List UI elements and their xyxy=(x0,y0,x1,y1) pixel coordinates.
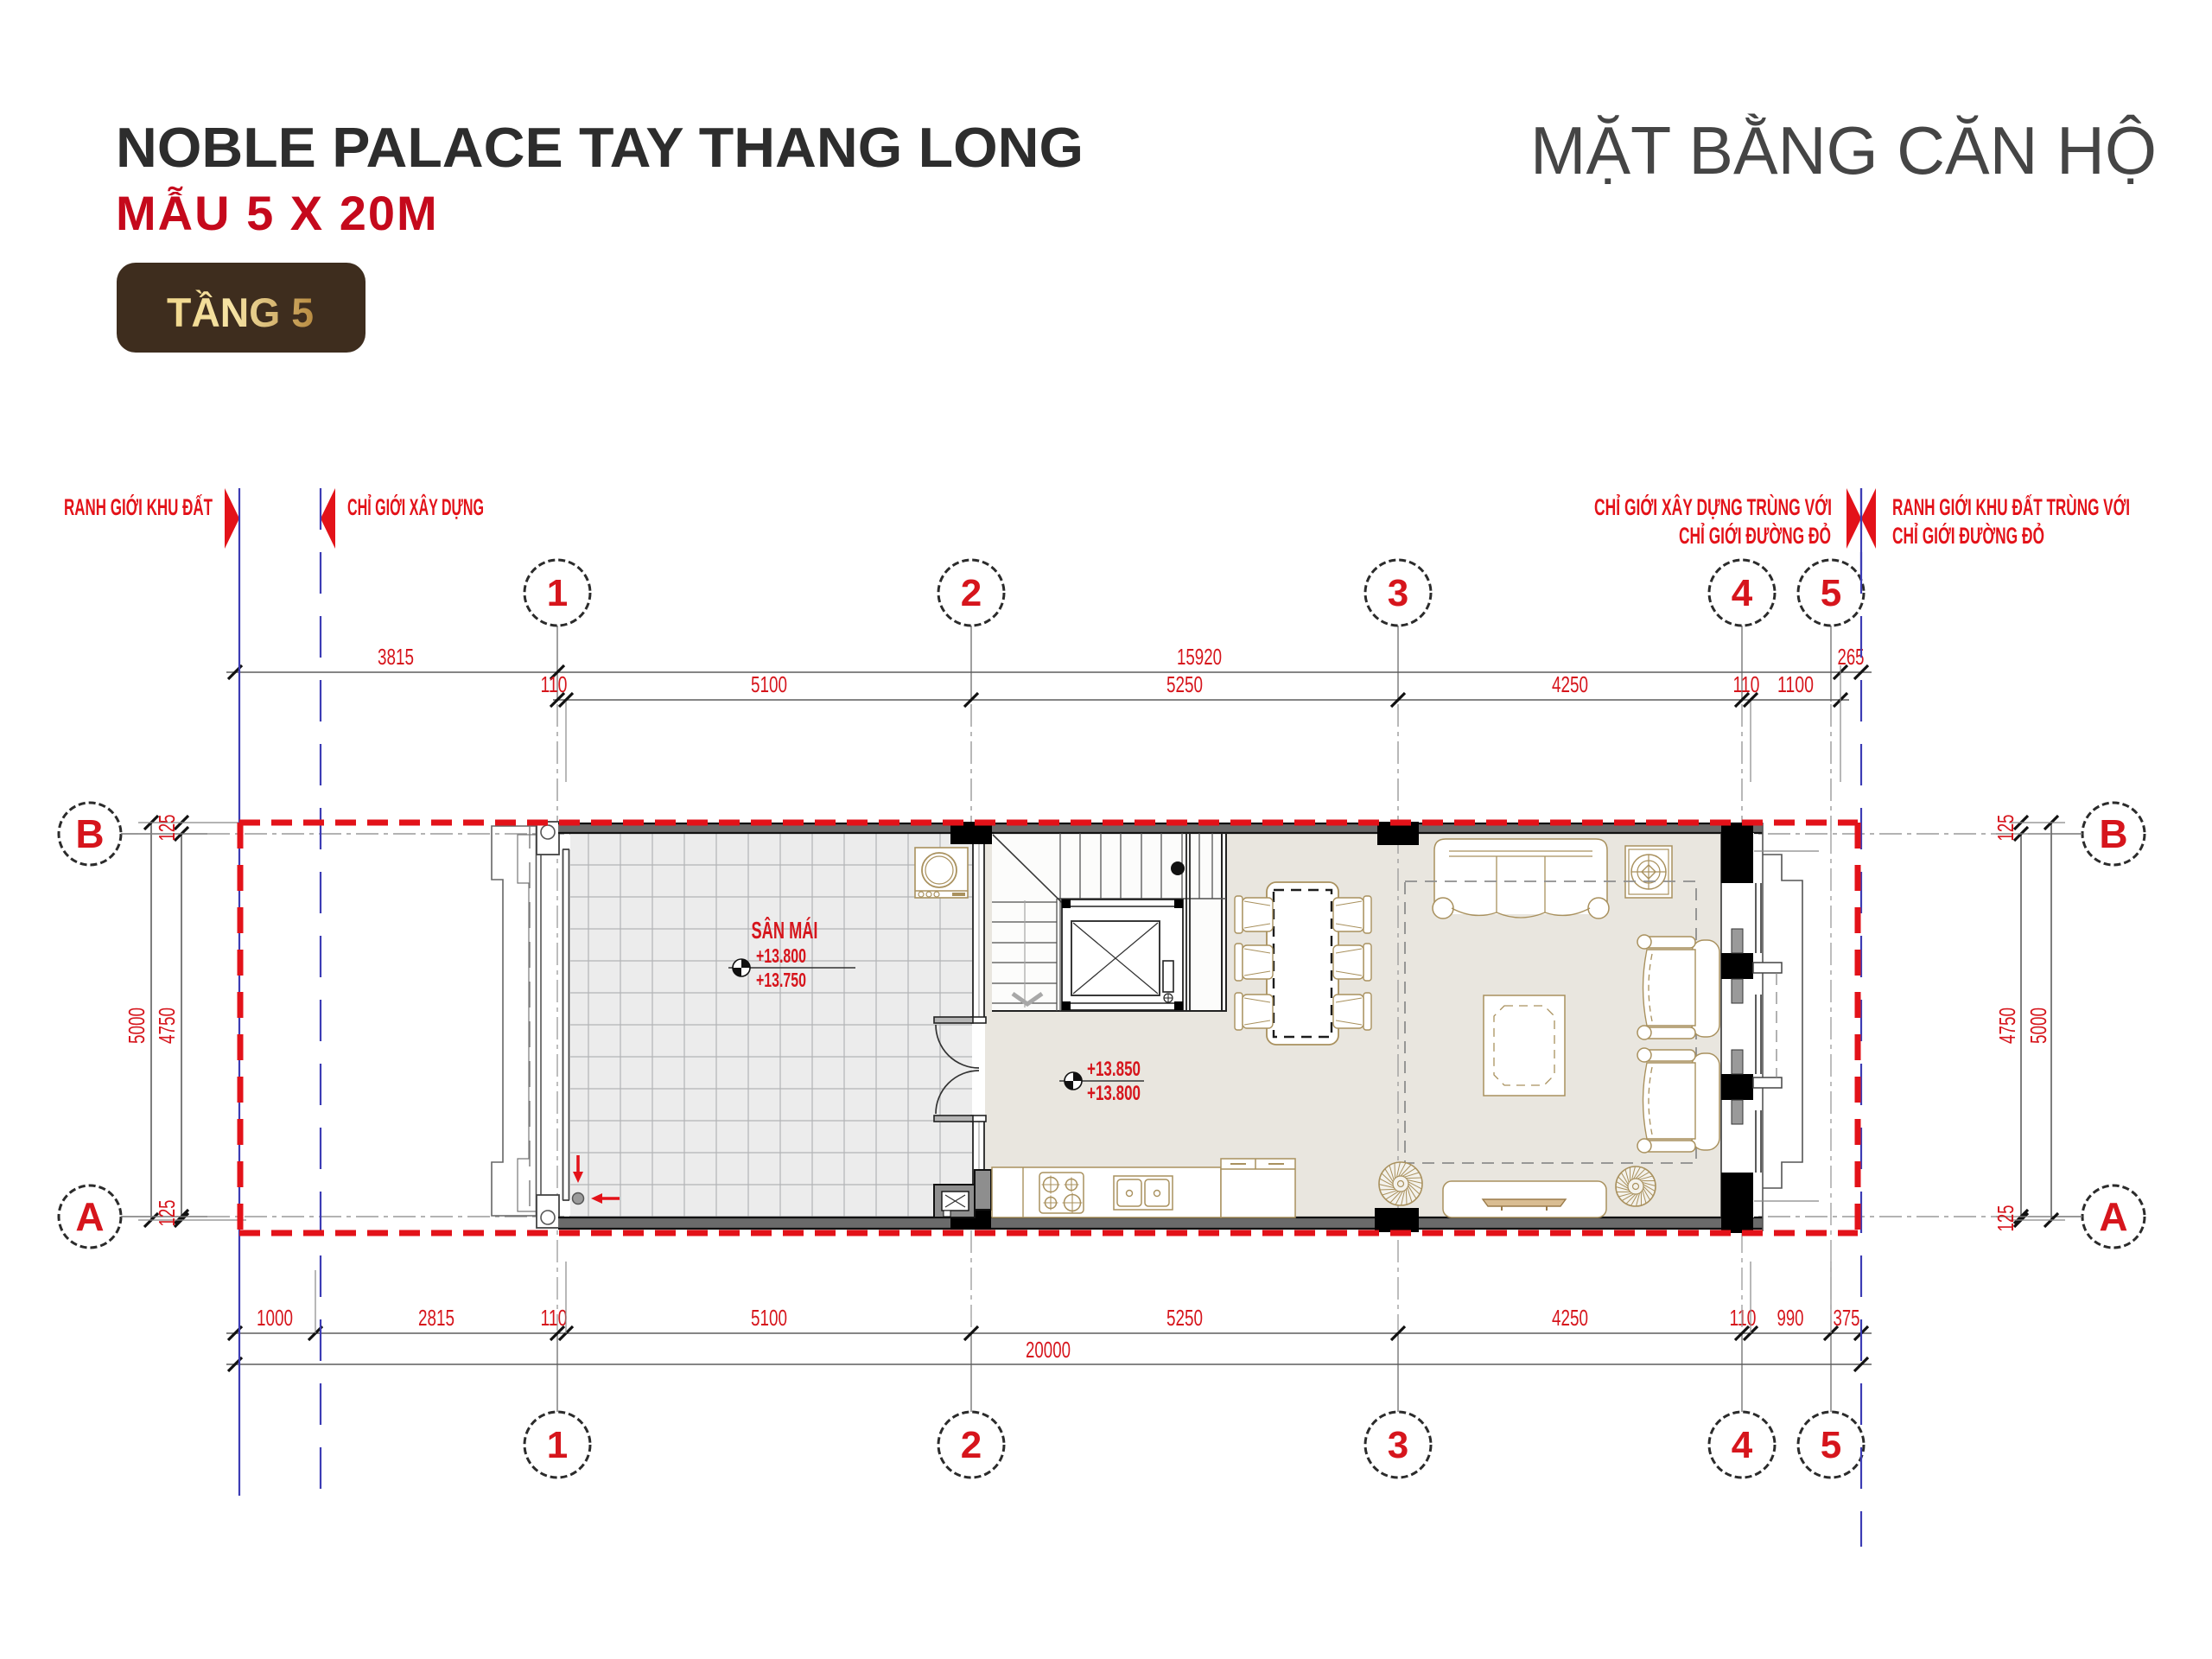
svg-text:125: 125 xyxy=(154,1200,180,1227)
svg-text:110: 110 xyxy=(1730,1305,1757,1331)
svg-text:4: 4 xyxy=(1732,1424,1753,1466)
svg-text:4250: 4250 xyxy=(1552,671,1588,697)
svg-text:CHỈ GIỚI ĐƯỜNG ĐỎ: CHỈ GIỚI ĐƯỜNG ĐỎ xyxy=(1892,521,2044,549)
svg-text:+13.850: +13.850 xyxy=(1087,1058,1141,1081)
svg-text:+13.750: +13.750 xyxy=(756,969,806,991)
svg-text:5100: 5100 xyxy=(751,671,787,697)
svg-text:125: 125 xyxy=(1993,1205,2018,1232)
svg-text:TẦNG 5: TẦNG 5 xyxy=(167,289,314,335)
svg-text:MẶT BẰNG CĂN HỘ: MẶT BẰNG CĂN HỘ xyxy=(1530,112,2157,188)
svg-text:B: B xyxy=(2099,811,2127,856)
svg-text:A: A xyxy=(2099,1194,2127,1239)
svg-text:5100: 5100 xyxy=(751,1305,787,1331)
svg-text:1100: 1100 xyxy=(1777,671,1814,697)
svg-text:2: 2 xyxy=(961,572,982,614)
svg-text:RANH GIỚI KHU ĐẤT TRÙNG VỚI: RANH GIỚI KHU ĐẤT TRÙNG VỚI xyxy=(1892,493,2130,520)
svg-text:15920: 15920 xyxy=(1177,644,1222,670)
svg-text:4750: 4750 xyxy=(154,1007,180,1044)
svg-text:3: 3 xyxy=(1388,1424,1408,1466)
svg-text:110: 110 xyxy=(1733,671,1760,697)
svg-text:375: 375 xyxy=(1834,1305,1860,1331)
svg-text:CHỈ GIỚI XÂY DỰNG TRÙNG VỚI: CHỈ GIỚI XÂY DỰNG TRÙNG VỚI xyxy=(1594,493,1832,520)
svg-text:5250: 5250 xyxy=(1166,671,1203,697)
svg-text:4750: 4750 xyxy=(1994,1007,2020,1044)
svg-text:5250: 5250 xyxy=(1166,1305,1203,1331)
svg-text:2815: 2815 xyxy=(418,1305,454,1331)
svg-text:3: 3 xyxy=(1388,572,1408,614)
svg-text:SÂN MÁI: SÂN MÁI xyxy=(752,917,818,944)
svg-text:MẪU 5 X 20M: MẪU 5 X 20M xyxy=(116,186,439,240)
svg-text:5000: 5000 xyxy=(2025,1007,2051,1044)
svg-text:125: 125 xyxy=(1993,815,2018,842)
svg-text:1: 1 xyxy=(547,572,568,614)
svg-text:A: A xyxy=(75,1194,104,1239)
svg-text:5000: 5000 xyxy=(124,1007,149,1044)
svg-text:B: B xyxy=(75,811,104,856)
svg-text:+13.800: +13.800 xyxy=(1087,1082,1141,1105)
svg-text:4250: 4250 xyxy=(1552,1305,1588,1331)
svg-text:5: 5 xyxy=(1821,572,1841,614)
svg-text:2: 2 xyxy=(961,1424,982,1466)
svg-text:5: 5 xyxy=(1821,1424,1841,1466)
svg-text:1: 1 xyxy=(547,1424,568,1466)
svg-text:NOBLE PALACE TAY THANG LONG: NOBLE PALACE TAY THANG LONG xyxy=(116,116,1084,179)
svg-text:3815: 3815 xyxy=(378,644,414,670)
svg-text:1000: 1000 xyxy=(257,1305,293,1331)
svg-text:990: 990 xyxy=(1777,1305,1804,1331)
svg-text:265: 265 xyxy=(1838,644,1865,670)
svg-text:CHỈ GIỚI XÂY DỰNG: CHỈ GIỚI XÂY DỰNG xyxy=(347,493,484,520)
svg-text:20000: 20000 xyxy=(1026,1337,1071,1363)
svg-text:110: 110 xyxy=(541,671,568,697)
svg-text:110: 110 xyxy=(541,1305,568,1331)
svg-text:+13.800: +13.800 xyxy=(756,944,806,967)
svg-text:4: 4 xyxy=(1732,572,1753,614)
svg-text:RANH GIỚI KHU ĐẤT: RANH GIỚI KHU ĐẤT xyxy=(64,493,213,520)
svg-text:CHỈ GIỚI ĐƯỜNG ĐỎ: CHỈ GIỚI ĐƯỜNG ĐỎ xyxy=(1679,521,1831,549)
svg-text:125: 125 xyxy=(154,815,180,842)
